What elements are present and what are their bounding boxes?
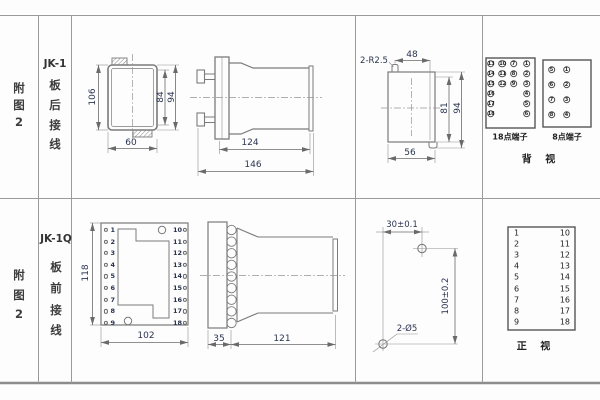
table-cell-left-7: 7 <box>514 295 519 304</box>
terminal-18-12: 12 <box>498 80 506 88</box>
table-cell-left-6: 6 <box>514 284 519 293</box>
table-cell-right-13: 13 <box>550 262 570 271</box>
table-cell-left-1: 1 <box>514 229 519 238</box>
front-terminal-num-10: 10 <box>169 226 182 234</box>
table-cell-left-9: 9 <box>514 317 519 326</box>
table-cell-right-10: 10 <box>550 229 570 238</box>
terminal-18-13: 13 <box>487 60 495 68</box>
front-terminal-num-13: 13 <box>169 261 182 269</box>
front-terminal-num-14: 14 <box>169 272 182 280</box>
front-terminal-num-17: 17 <box>169 307 182 315</box>
terminal-18-8: 8 <box>510 70 518 78</box>
terminal-18-7: 7 <box>510 60 518 68</box>
table-cell-left-3: 3 <box>514 251 519 260</box>
front-terminal-num-11: 11 <box>169 238 182 246</box>
front-terminal-num-2: 2 <box>111 238 116 246</box>
front-terminal-dot-12 <box>183 251 187 255</box>
terminal-18-15: 15 <box>487 80 495 88</box>
front-terminal-dot-8 <box>104 309 108 313</box>
terminal-8-2: 2 <box>563 81 571 89</box>
terminal-18-10: 10 <box>498 60 506 68</box>
table-cell-left-2: 2 <box>514 240 519 249</box>
table-cell-right-16: 16 <box>550 295 570 304</box>
front-terminal-num-15: 15 <box>169 284 182 292</box>
generated-annotations: 1310711411821512931641751865162738412345… <box>0 0 600 400</box>
front-terminal-num-7: 7 <box>111 296 116 304</box>
technical-drawing-sheet: 附 图 2 JK-1 板 后 接 线 附 图 2 JK-1Q 板 前 接 线 1… <box>0 0 600 400</box>
front-terminal-num-3: 3 <box>111 249 116 257</box>
terminal-8-4: 4 <box>563 111 571 119</box>
table-cell-left-8: 8 <box>514 306 519 315</box>
table-cell-right-12: 12 <box>550 251 570 260</box>
front-terminal-dot-6 <box>104 286 108 290</box>
terminal-8-5: 5 <box>548 66 556 74</box>
front-terminal-num-5: 5 <box>111 272 116 280</box>
front-terminal-num-18: 18 <box>169 319 182 327</box>
terminal-8-8: 8 <box>548 111 556 119</box>
front-terminal-dot-10 <box>183 228 187 232</box>
terminal-18-3: 3 <box>523 80 531 88</box>
terminal-18-14: 14 <box>487 70 495 78</box>
front-terminal-dot-15 <box>183 286 187 290</box>
table-cell-right-15: 15 <box>550 284 570 293</box>
terminal-18-9: 9 <box>510 80 518 88</box>
terminal-8-6: 6 <box>548 81 556 89</box>
front-terminal-num-1: 1 <box>111 226 116 234</box>
terminal-18-2: 2 <box>523 70 531 78</box>
front-terminal-dot-4 <box>104 263 108 267</box>
terminal-18-11: 11 <box>498 70 506 78</box>
front-terminal-num-9: 9 <box>111 319 116 327</box>
terminal-18-1: 1 <box>523 60 531 68</box>
table-cell-right-18: 18 <box>550 317 570 326</box>
front-terminal-dot-11 <box>183 240 187 244</box>
front-terminal-num-6: 6 <box>111 284 116 292</box>
terminal-18-4: 4 <box>523 90 531 98</box>
front-terminal-num-16: 16 <box>169 296 182 304</box>
front-terminal-num-8: 8 <box>111 307 116 315</box>
table-cell-right-17: 17 <box>550 306 570 315</box>
terminal-18-17: 17 <box>487 100 495 108</box>
terminal-8-7: 7 <box>548 96 556 104</box>
front-terminal-dot-18 <box>183 321 187 325</box>
terminal-18-18: 18 <box>487 110 495 118</box>
front-terminal-dot-16 <box>183 298 187 302</box>
table-cell-left-5: 5 <box>514 273 519 282</box>
front-terminal-dot-13 <box>183 263 187 267</box>
front-terminal-dot-14 <box>183 274 187 278</box>
front-terminal-dot-9 <box>104 321 108 325</box>
front-terminal-dot-1 <box>104 228 108 232</box>
terminal-18-16: 16 <box>487 90 495 98</box>
terminal-18-6: 6 <box>523 110 531 118</box>
front-terminal-dot-7 <box>104 298 108 302</box>
table-cell-right-11: 11 <box>550 240 570 249</box>
front-terminal-dot-5 <box>104 274 108 278</box>
front-terminal-dot-2 <box>104 240 108 244</box>
front-terminal-num-12: 12 <box>169 249 182 257</box>
front-terminal-dot-3 <box>104 251 108 255</box>
front-terminal-dot-17 <box>183 309 187 313</box>
table-cell-right-14: 14 <box>550 273 570 282</box>
terminal-18-5: 5 <box>523 100 531 108</box>
table-cell-left-4: 4 <box>514 262 519 271</box>
front-terminal-num-4: 4 <box>111 261 116 269</box>
terminal-8-3: 3 <box>563 96 571 104</box>
terminal-8-1: 1 <box>563 66 571 74</box>
